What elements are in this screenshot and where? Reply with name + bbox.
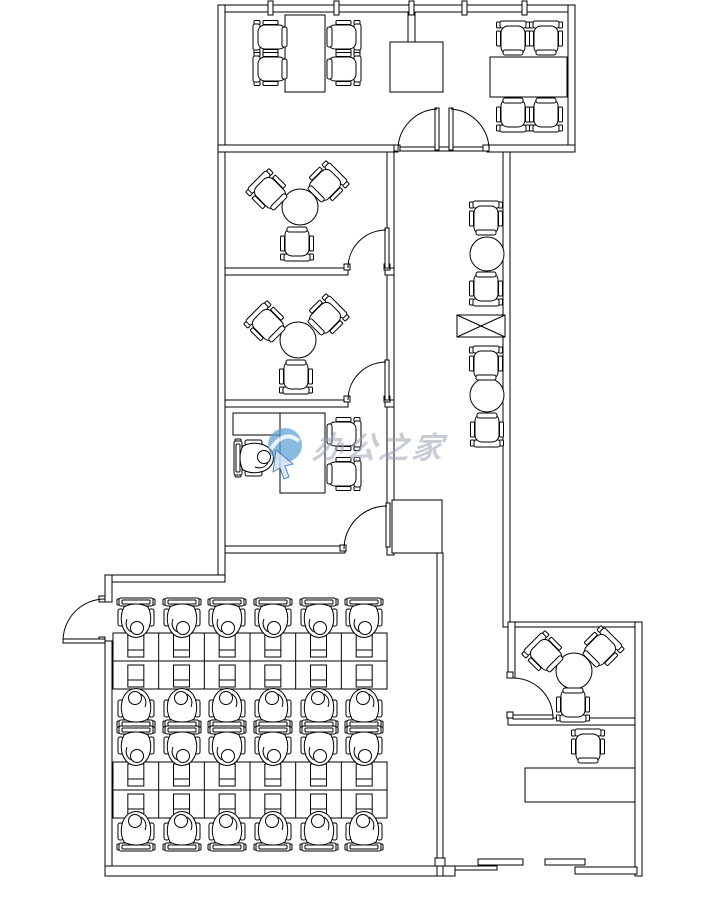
meeting-chair	[470, 201, 503, 235]
monitor-body	[356, 635, 372, 657]
storage-cabinet	[392, 500, 442, 553]
entrance-door	[63, 599, 105, 643]
manager-desk-return	[233, 413, 280, 435]
mid-wall-right	[487, 145, 575, 152]
wall-tick	[268, 1, 273, 15]
work-chair	[163, 598, 201, 638]
work-chair	[234, 439, 274, 477]
room-c-bottom-wall	[225, 546, 345, 553]
double-door-right-leaf-swing-arc	[451, 109, 489, 150]
meeting-chair	[327, 53, 361, 86]
room-c-door-swing-arc	[344, 506, 387, 549]
floor-plan-drawing: 办公之家	[0, 0, 716, 898]
work-chair	[163, 689, 201, 729]
monitor	[265, 665, 281, 687]
entry-panel-b	[545, 859, 585, 865]
desk-grid	[113, 762, 387, 818]
room-b-door	[348, 360, 389, 400]
monitor	[219, 635, 235, 657]
upper-right-wall	[568, 5, 575, 152]
monitor-body	[219, 635, 235, 657]
work-chair	[300, 726, 338, 766]
lounge-door-leaf	[513, 715, 553, 719]
lounge-top-wall	[508, 622, 642, 627]
round-table	[470, 237, 504, 271]
planter-box	[457, 315, 505, 337]
meeting-chair	[281, 227, 314, 261]
meeting-chair	[557, 688, 590, 722]
work-chair	[345, 689, 383, 729]
monitor-body	[174, 635, 190, 657]
room-a-bottom-wall	[225, 268, 348, 275]
monitor-body	[311, 665, 327, 687]
entrance-door-leaf	[63, 639, 105, 643]
rooms-right-wall	[387, 152, 394, 555]
meeting-chair	[470, 346, 503, 380]
office-right-wall	[437, 553, 443, 876]
office-left-wall-lower	[105, 641, 112, 876]
monitor	[174, 764, 190, 786]
work-chair	[208, 726, 246, 766]
monitor	[356, 764, 372, 786]
corridor-right-wall	[503, 152, 510, 627]
work-chair	[254, 726, 292, 766]
monitor	[356, 665, 372, 687]
room-b-bottom-wall	[225, 400, 348, 407]
monitor	[311, 635, 327, 657]
work-chair	[254, 598, 292, 638]
work-chair	[300, 689, 338, 729]
door-jamb	[344, 396, 350, 402]
monitor	[265, 764, 281, 786]
monitor	[219, 764, 235, 786]
entry-lower-wall	[575, 867, 637, 874]
work-chair	[345, 726, 383, 766]
wall-tick	[462, 1, 467, 15]
meeting-table	[490, 57, 567, 97]
monitor-body	[265, 635, 281, 657]
right-outer-wall	[635, 622, 642, 876]
work-chair	[208, 598, 246, 638]
wall-tick	[409, 1, 414, 15]
vestibule-cabinet	[390, 42, 443, 92]
watermark-text: 办公之家	[311, 431, 450, 465]
door-jamb	[507, 712, 513, 718]
work-chair	[254, 689, 292, 729]
meeting-chair	[497, 21, 530, 55]
meeting-chair	[530, 21, 563, 55]
meeting-chair	[497, 98, 530, 132]
monitor-body	[128, 665, 144, 687]
meeting-chair	[471, 413, 504, 447]
meeting-chair	[572, 729, 605, 763]
door-jamb	[394, 145, 400, 151]
room-c-door-leaf	[386, 503, 390, 547]
entry-panel-a	[478, 859, 523, 865]
double-door-threshold	[398, 147, 489, 151]
reception-desk	[525, 768, 635, 802]
work-chair	[163, 726, 201, 766]
office-bottom-wall	[105, 866, 455, 876]
desk-grid	[113, 633, 387, 689]
monitor	[128, 665, 144, 687]
lounge-left-wall	[508, 622, 515, 678]
round-table	[470, 378, 504, 412]
monitor	[311, 665, 327, 687]
monitor-body	[219, 665, 235, 687]
monitor	[311, 764, 327, 786]
office-top-wall	[105, 575, 225, 582]
double-door-right-leaf	[449, 108, 489, 150]
meeting-chair	[253, 53, 287, 86]
work-chair	[117, 689, 155, 729]
entrance-door-swing-arc	[63, 599, 105, 641]
work-chair	[300, 598, 338, 638]
door-jamb	[344, 264, 350, 270]
monitor	[356, 635, 372, 657]
entry-ledge	[455, 866, 497, 870]
double-door-left-leaf-swing-arc	[398, 109, 437, 150]
lounge-door-swing-arc	[513, 678, 553, 718]
monitor-body	[219, 764, 235, 786]
room-a-door	[348, 228, 389, 268]
monitor	[265, 635, 281, 657]
room-c-door	[344, 503, 390, 549]
double-door-left-leaf-leaf	[435, 108, 439, 150]
double-door-right-leaf-leaf	[449, 108, 453, 150]
floor-plan-page: 办公之家	[0, 0, 716, 898]
room-b-door-leaf	[385, 360, 389, 400]
monitor	[128, 635, 144, 657]
monitor-body	[265, 665, 281, 687]
monitor	[174, 635, 190, 657]
round-table	[280, 322, 316, 358]
monitor-body	[128, 764, 144, 786]
monitor-body	[356, 665, 372, 687]
room-a-door-swing-arc	[348, 230, 386, 268]
vestibule-stub-wall	[408, 12, 415, 42]
office-left-wall-upper	[105, 575, 112, 602]
monitor-body	[311, 635, 327, 657]
monitor-body	[174, 665, 190, 687]
monitor	[219, 665, 235, 687]
monitor-body	[356, 764, 372, 786]
mid-wall-left	[218, 145, 398, 152]
room-b-door-swing-arc	[348, 362, 386, 400]
meeting-chair	[470, 272, 503, 306]
work-chair	[117, 726, 155, 766]
work-chair	[345, 598, 383, 638]
monitor-body	[311, 764, 327, 786]
wall-tick	[522, 1, 527, 15]
monitor-body	[128, 635, 144, 657]
door-jamb	[483, 145, 489, 151]
room-a-door-leaf	[385, 228, 389, 268]
meeting-chair	[280, 360, 313, 394]
door-jamb	[340, 545, 346, 551]
door-jamb	[507, 672, 513, 678]
meeting-table	[285, 15, 325, 92]
monitor	[128, 764, 144, 786]
meeting-chair	[253, 21, 287, 54]
monitor-body	[265, 764, 281, 786]
meeting-chair	[530, 98, 563, 132]
monitor	[174, 665, 190, 687]
double-door-left-leaf	[398, 108, 439, 150]
entry-post	[435, 858, 445, 866]
monitor-body	[174, 764, 190, 786]
lounge-door	[513, 678, 553, 719]
upper-left-wall	[218, 5, 225, 582]
meeting-chair	[327, 21, 361, 54]
wall-tick	[334, 1, 339, 15]
work-chair	[117, 598, 155, 638]
work-chair	[208, 689, 246, 729]
